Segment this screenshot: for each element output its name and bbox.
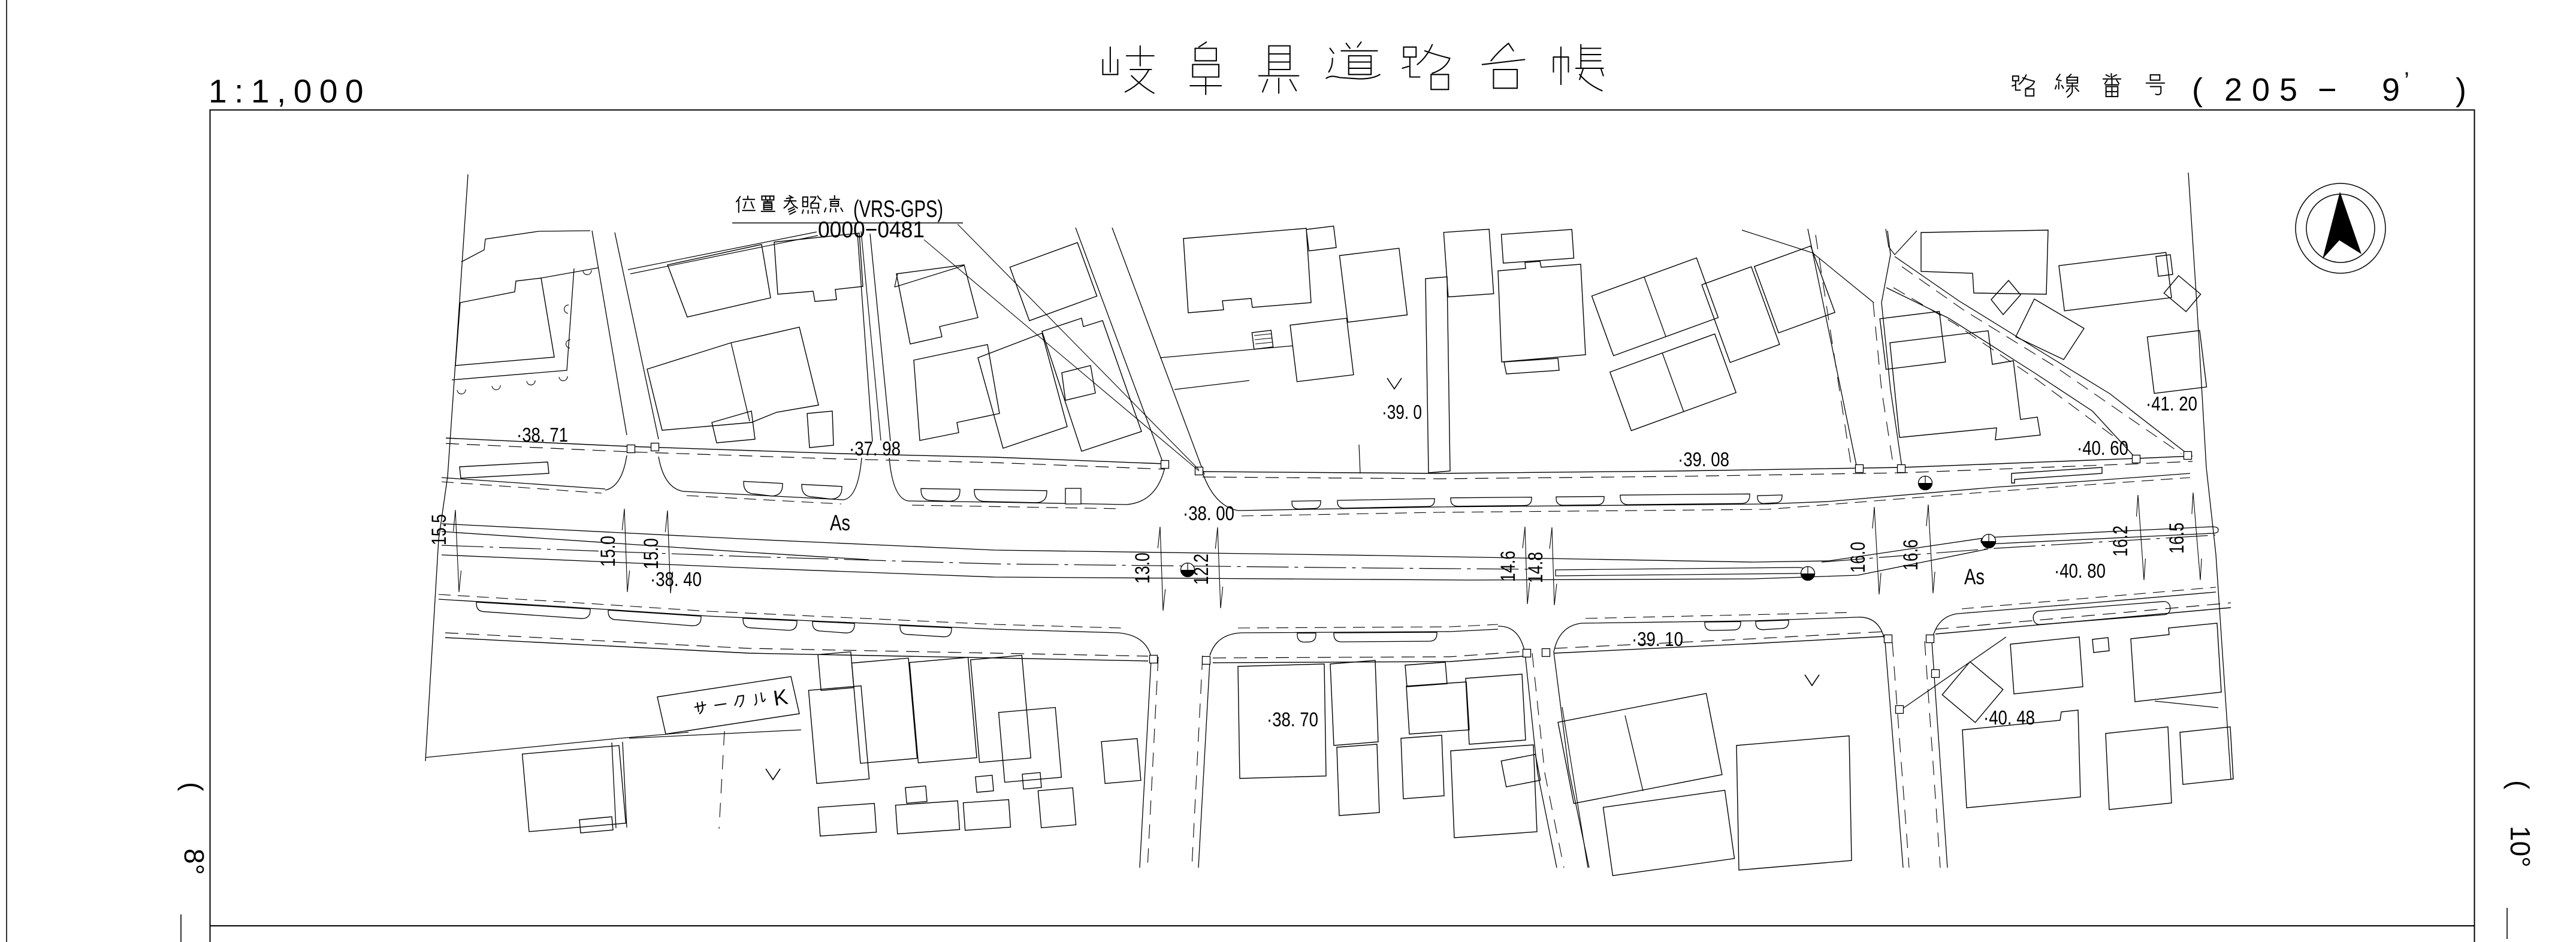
svg-text:15.0: 15.0: [640, 538, 663, 569]
svg-text:10°: 10°: [2505, 826, 2536, 868]
svg-text:16.2: 16.2: [2109, 526, 2132, 557]
svg-text:15.0: 15.0: [597, 536, 620, 567]
svg-text:As: As: [830, 511, 850, 535]
svg-text:16.0: 16.0: [1847, 542, 1870, 573]
svg-text:(: (: [2503, 780, 2535, 790]
svg-text:·39. 0: ·39. 0: [1382, 401, 1422, 423]
svg-text:16.6: 16.6: [1899, 539, 1922, 570]
svg-text:12.2: 12.2: [1190, 554, 1213, 585]
svg-text:·38. 40: ·38. 40: [650, 568, 702, 590]
svg-text:As: As: [1964, 564, 1985, 589]
svg-text:·38. 71: ·38. 71: [517, 424, 568, 446]
svg-text:8°: 8°: [179, 849, 210, 875]
svg-text:2: 2: [2224, 72, 2242, 108]
svg-text:13.0: 13.0: [1131, 552, 1154, 584]
svg-text:16.5: 16.5: [2166, 523, 2188, 554]
svg-text:’: ’: [2404, 68, 2409, 94]
svg-text:15.5: 15.5: [428, 514, 451, 545]
svg-text:5: 5: [2279, 72, 2297, 108]
svg-text:9: 9: [2382, 72, 2400, 108]
svg-text:): ): [2456, 72, 2466, 108]
svg-text:(: (: [2192, 72, 2203, 108]
svg-text:14.8: 14.8: [1524, 552, 1547, 583]
svg-text:0000−0481: 0000−0481: [818, 218, 925, 243]
svg-text:14.6: 14.6: [1497, 551, 1520, 582]
svg-text:−: −: [2318, 72, 2337, 108]
svg-text:·38. 70: ·38. 70: [1267, 708, 1318, 730]
svg-text:0: 0: [2252, 72, 2270, 108]
svg-text:·39. 10: ·39. 10: [1632, 628, 1683, 650]
svg-text:·37. 98: ·37. 98: [849, 437, 901, 460]
svg-text:·40. 60: ·40. 60: [2077, 437, 2128, 459]
svg-text:1:1,000: 1:1,000: [209, 73, 371, 110]
svg-text:·40. 80: ·40. 80: [2054, 560, 2106, 582]
svg-text:·38. 00: ·38. 00: [1183, 502, 1234, 524]
svg-text:·39. 08: ·39. 08: [1678, 448, 1729, 470]
svg-text:·41. 20: ·41. 20: [2146, 393, 2197, 415]
svg-text:(: (: [177, 782, 209, 792]
